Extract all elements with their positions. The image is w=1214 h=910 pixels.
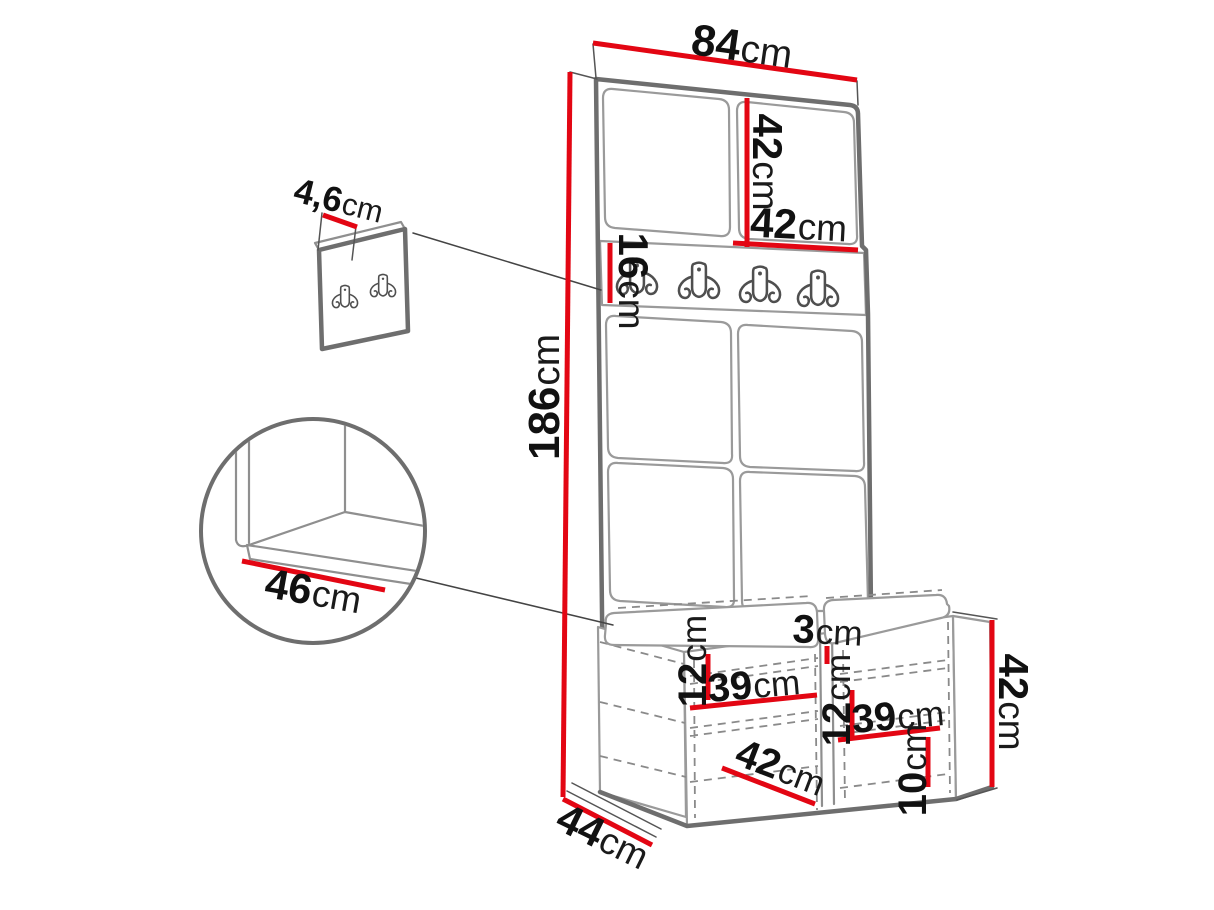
dim-bottom-gap-label: 10cm (891, 724, 935, 816)
lower-panel-top-left (606, 316, 732, 463)
wall-hook-panel-detail (315, 222, 408, 349)
bench-left-side-face (598, 627, 686, 817)
dim-overall-width-label: 84cm (688, 15, 795, 78)
lower-panels (606, 316, 868, 611)
dim-bench-h-label: 42cm (990, 654, 1037, 751)
dim-overall-h-label: 186cm (520, 334, 569, 460)
leader-seat-detail (416, 578, 613, 625)
upper-panel-left (603, 89, 730, 236)
lower-panel-bottom-left (608, 463, 734, 607)
bench-end-panel (953, 616, 992, 799)
dim-top-panel-h-label: 42cm (744, 114, 791, 211)
lower-panel-bottom-right (740, 472, 868, 611)
diagram-canvas: 84cm 42cm 42cm 16cm 186cm 4,6cm 46cm 12c… (0, 0, 1214, 910)
furniture-dimension-diagram: 84cm 42cm 42cm 16cm 186cm 4,6cm 46cm 12c… (0, 0, 1214, 910)
coat-hook-icon (370, 274, 395, 296)
coat-hook-icon (332, 285, 357, 307)
leader-hook-panel (413, 233, 601, 290)
dim-divider-label: 3cm (791, 607, 863, 655)
dim-rail-h-label: 16cm (610, 233, 657, 330)
lower-panel-top-right (738, 325, 864, 471)
